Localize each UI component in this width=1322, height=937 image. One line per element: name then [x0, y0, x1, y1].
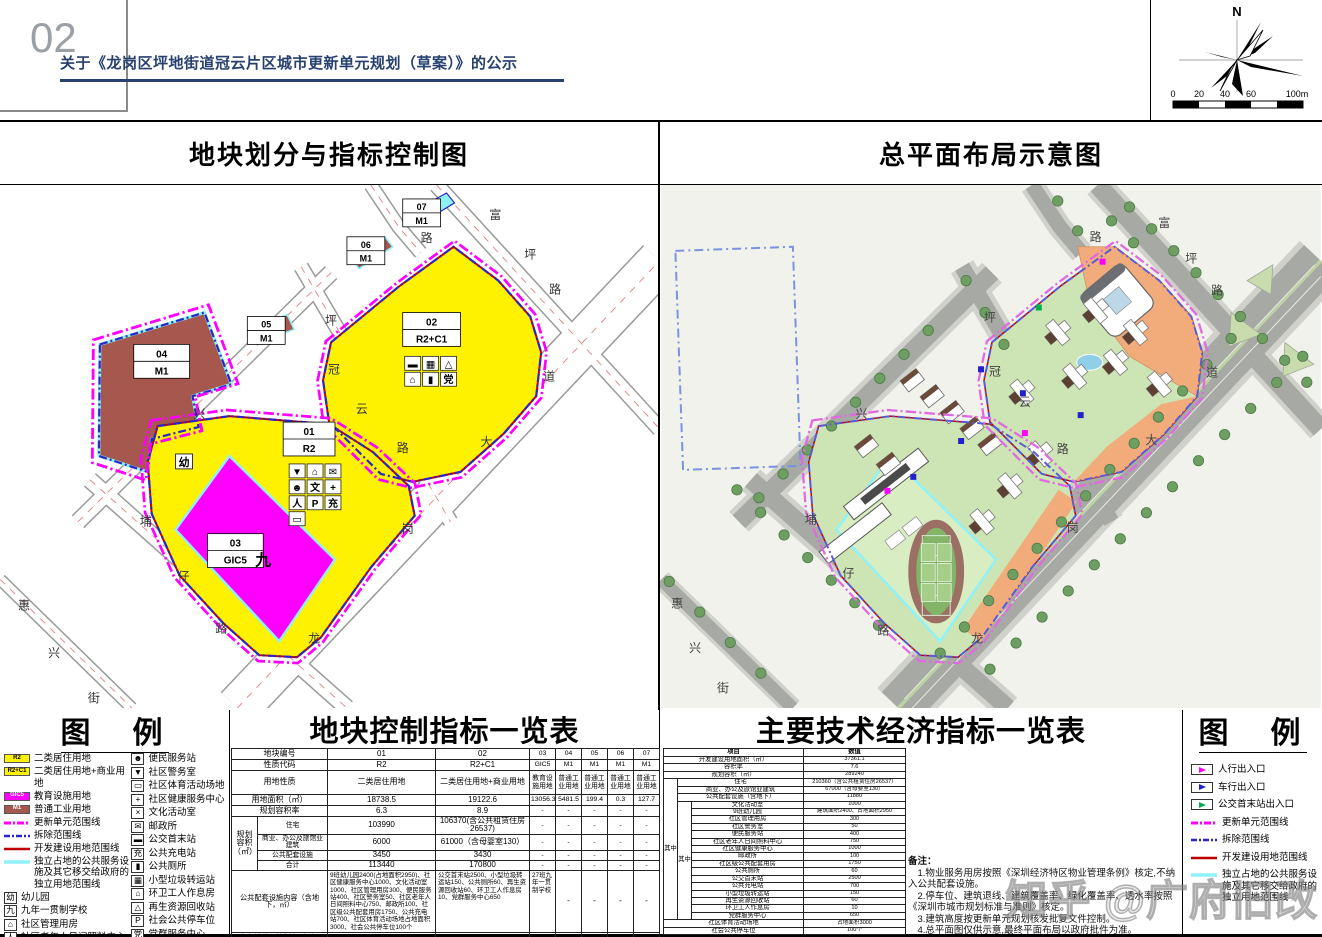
svg-text:M1: M1: [155, 366, 169, 377]
svg-text:02: 02: [426, 317, 438, 328]
legend-item-line: 开发建设用地范围线: [4, 843, 129, 855]
legend-item-facility: ▦小型垃圾转运站: [131, 875, 227, 887]
legend-left-col1: R2二类居住用地 R2+C1二类居住用地+商业用地 GIC5教育设施用地 M1普…: [4, 753, 129, 937]
svg-text:▦: ▦: [426, 359, 435, 370]
legend-right: 图 例 人行出入口车行出入口公交首末站出入口更新单元范围线拆除范围线开发建设用地…: [1183, 710, 1322, 934]
svg-text:▼: ▼: [292, 467, 302, 478]
svg-text:04: 04: [156, 349, 168, 360]
legend-item-facility: ▬公交首末站: [131, 834, 227, 846]
legend-item-entrance: 车行出入口: [1191, 782, 1318, 794]
svg-text:道: 道: [543, 369, 555, 383]
legend-item-facility: ▮公共厕所: [131, 861, 227, 873]
planning-notice-page: 02 关于《龙岗区坪地街道冠云片区城市更新单元规划（草案）》的公示 N 0: [0, 0, 1322, 937]
bus-entrance-icon: [1036, 305, 1042, 311]
legend-item-boxed: 人社区老年人日间照料中心: [4, 932, 129, 937]
legend-item-facility: △再生资源回收站: [131, 902, 227, 914]
svg-text:路: 路: [1211, 283, 1223, 298]
siteplan-map: 富 坪 路 路 坪 冠 云 路 兴 道 大 岗 龙 埔 仔 路 惠: [660, 185, 1322, 708]
社区管理用房-icon: ⌂: [4, 919, 17, 931]
svg-text:坪: 坪: [984, 310, 996, 324]
legend-item-boxed: ⌂社区管理用房: [4, 919, 129, 931]
svg-text:路: 路: [877, 622, 889, 637]
小型垃圾转运站-icon: ▦: [131, 875, 144, 887]
plot-table: 地块编号01020304050607性质代码R2R2+C1GIC5M1M1M1M…: [230, 748, 659, 937]
svg-text:坪: 坪: [325, 313, 337, 327]
svg-text:▬: ▬: [408, 359, 418, 370]
entrance-arrow-icon: [1191, 782, 1213, 793]
svg-text:△: △: [445, 359, 453, 370]
vehicle-entrance-icon: [978, 366, 984, 372]
svg-text:龙: 龙: [971, 631, 983, 645]
svg-text:R2: R2: [303, 444, 316, 455]
svg-text:07: 07: [417, 202, 427, 212]
svg-text:06: 06: [361, 240, 371, 250]
legend-item-facility: ☻便民服务站: [131, 753, 227, 765]
svg-text:60: 60: [1246, 89, 1256, 99]
svg-text:路: 路: [1090, 229, 1102, 244]
svg-text:埔: 埔: [805, 513, 817, 527]
便民服务站-icon: ☻: [131, 753, 144, 765]
svg-text:人: 人: [292, 497, 302, 510]
svg-text:岗: 岗: [402, 522, 414, 536]
map-panels: 地块划分与指标控制图: [0, 122, 1322, 710]
社区老年人日间照料中心-icon: 人: [4, 932, 17, 937]
entrance-arrow-icon: [1191, 764, 1213, 775]
svg-text:⌂: ⌂: [410, 375, 416, 386]
area-swatch-icon: M1: [4, 805, 30, 814]
legend-right-items: 人行出入口车行出入口公交首末站出入口更新单元范围线拆除范围线开发建设用地范围线独…: [1183, 750, 1322, 904]
pedestrian-entrance-icon: [1100, 259, 1106, 265]
公共充电站-icon: 充: [131, 848, 144, 860]
svg-text:仔: 仔: [843, 566, 855, 580]
社区警务室-icon: ▼: [131, 767, 144, 779]
kindergarten-mark: 幼: [179, 455, 190, 469]
compass-rose: [1205, 22, 1303, 96]
svg-text:路: 路: [215, 620, 227, 635]
notes-block: 备注：1.物业服务用房按照《深圳经济特区物业管理条例》核定,不纳入公共配套设施。…: [908, 856, 1180, 937]
svg-text:兴: 兴: [48, 646, 60, 660]
svg-text:埔: 埔: [140, 515, 152, 529]
cyan-solid-line-icon: [1191, 871, 1217, 879]
legend-item-line: 开发建设用地范围线: [1191, 852, 1318, 864]
svg-text:☻: ☻: [292, 483, 302, 494]
svg-text:M1: M1: [260, 333, 272, 343]
svg-text:云: 云: [1019, 395, 1031, 409]
svg-text:文: 文: [310, 481, 321, 494]
legend-item-facility: ▭社区体育活动场地: [131, 780, 227, 792]
legend-item-area: R2+C1二类居住用地+商业用地: [4, 766, 129, 789]
svg-text:兴: 兴: [689, 641, 701, 655]
plot-table-title: 地块控制指标一览表: [230, 710, 659, 748]
siteplan-title: 总平面布局示意图: [660, 122, 1322, 185]
running-track: [912, 524, 960, 620]
svg-text:⌂: ⌂: [312, 467, 318, 478]
legend-item-facility: 充公共充电站: [131, 848, 227, 860]
svg-text:40: 40: [1220, 89, 1230, 99]
legend-item-area: R2二类居住用地: [4, 753, 129, 765]
area-swatch-icon: R2+C1: [4, 767, 30, 776]
legend-item-boxed: 幼幼儿园: [4, 892, 129, 904]
page-title: 关于《龙岗区坪地街道冠云片区城市更新单元规划（草案）》的公示: [60, 52, 564, 82]
svg-text:惠: 惠: [671, 596, 683, 610]
svg-text:大: 大: [480, 435, 492, 449]
legend-item-line: 独立占地的公共服务设施及其它移交给政府的独立用地范围线: [4, 856, 129, 891]
svg-text:惠: 惠: [18, 598, 30, 612]
plot-table-section: 地块控制指标一览表 地块编号01020304050607性质代码R2R2+C1G…: [230, 710, 660, 934]
svg-text:岗: 岗: [1067, 521, 1079, 535]
svg-text:GIC5: GIC5: [224, 556, 248, 567]
plot-label-01: 01R2: [283, 422, 335, 456]
svg-text:路: 路: [1057, 441, 1069, 456]
cyan-solid-line-icon: [4, 858, 30, 866]
svg-text:冠: 冠: [989, 364, 1001, 378]
legend-left: 图 例 R2二类居住用地 R2+C1二类居住用地+商业用地 GIC5教育设施用地…: [0, 710, 230, 934]
svg-text:M1: M1: [415, 216, 427, 226]
tech-table-section: 主要技术经济指标一览表 项目数值开发建设用地面积（㎡）37361.1容积率7.6…: [660, 710, 1183, 934]
area-swatch-icon: R2: [4, 754, 30, 763]
zoning-map: 富 坪 路 路 坪 冠 云 路 兴 道 大 岗 龙 埔 仔 路 惠: [0, 185, 658, 708]
legend-item-facility: ×文化活动室: [131, 807, 227, 819]
legend-item-line: 拆除范围线: [4, 830, 129, 842]
entrance-arrow-icon: [1191, 799, 1213, 810]
svg-text:05: 05: [261, 319, 271, 329]
文化活动室-icon: ×: [131, 807, 144, 819]
svg-text:01: 01: [304, 427, 316, 438]
magenta-dashdot-line-icon: [4, 819, 30, 827]
plot-label-06: 06M1: [347, 237, 385, 265]
svg-text:兴: 兴: [194, 407, 206, 421]
公交首末站-icon: ▬: [131, 834, 144, 846]
legend-left-col2: ☻便民服务站▼社区警务室▭社区体育活动场地+社区健康服务中心×文化活动室✉邮政所…: [131, 753, 227, 937]
zoning-map-panel: 地块划分与指标控制图: [0, 122, 660, 710]
siteplan-panel: 总平面布局示意图: [660, 122, 1322, 710]
legend-left-title: 图 例: [61, 708, 169, 753]
社区体育活动场地-icon: ▭: [131, 780, 144, 792]
legend-item-area: GIC5教育设施用地: [4, 791, 129, 803]
compass-rose-white-ne: [1237, 30, 1263, 60]
scale-bar: [1173, 101, 1303, 108]
legend-item-line: 更新单元范围线: [1191, 817, 1318, 829]
legend-item-facility: 党党群服务中心: [131, 929, 227, 937]
svg-text:✉: ✉: [329, 467, 337, 478]
legend-item-facility: +社区健康服务中心: [131, 794, 227, 806]
svg-text:P: P: [312, 499, 319, 510]
legend-item-facility: ⌂环卫工人作息房: [131, 888, 227, 900]
legend-item-line: 更新单元范围线: [4, 817, 129, 829]
svg-text:M1: M1: [360, 254, 372, 264]
legend-item-entrance: 公交首末站出入口: [1191, 799, 1318, 811]
plot-label-07: 07M1: [403, 199, 441, 227]
legend-right-title: 图 例: [1199, 708, 1307, 753]
svg-text:充: 充: [328, 497, 338, 510]
svg-text:兴: 兴: [856, 407, 868, 421]
svg-text:▮: ▮: [428, 375, 433, 386]
社会公共停车位-icon: P: [131, 915, 144, 927]
svg-text:富: 富: [489, 207, 501, 222]
red-solid-line-icon: [4, 845, 30, 853]
九年一贯制学校-icon: 九: [4, 905, 17, 917]
svg-text:云: 云: [356, 402, 368, 416]
svg-text:100m: 100m: [1286, 89, 1309, 99]
再生资源回收站-icon: △: [131, 902, 144, 914]
svg-text:仔: 仔: [178, 569, 190, 583]
zoning-map-title: 地块划分与指标控制图: [0, 122, 658, 185]
svg-text:党: 党: [444, 373, 454, 386]
环卫工人作息房-icon: ⌂: [131, 888, 144, 900]
svg-text:大: 大: [1145, 433, 1157, 447]
compass-box: N 0 20 40 60 100m: [1150, 0, 1322, 122]
svg-text:20: 20: [1194, 89, 1204, 99]
社区健康服务中心-icon: +: [131, 794, 144, 806]
svg-text:坪: 坪: [1185, 252, 1197, 266]
plot-label-05: 05M1: [247, 316, 285, 344]
公共厕所-icon: ▮: [131, 861, 144, 873]
page-title-text: 关于《龙岗区坪地街道冠云片区城市更新单元规划（草案）》的公示: [60, 52, 564, 82]
bottom-strip: 图 例 R2二类居住用地 R2+C1二类居住用地+商业用地 GIC5教育设施用地…: [0, 710, 1322, 937]
plot-label-04: 04M1: [134, 344, 190, 378]
compass-svg: N 0 20 40 60 100m: [1151, 0, 1322, 122]
邮政所-icon: ✉: [131, 821, 144, 833]
nine-year-school-mark: 九: [254, 552, 271, 570]
svg-text:坪: 坪: [524, 248, 536, 262]
svg-text:0: 0: [1170, 89, 1175, 99]
svg-text:路: 路: [421, 230, 433, 245]
blue-dashdot-line-icon: [1191, 836, 1217, 844]
blue-dashdot-line-icon: [4, 832, 30, 840]
legend-item-facility: ✉邮政所: [131, 821, 227, 833]
svg-text:龙: 龙: [308, 631, 320, 645]
svg-text:03: 03: [230, 539, 242, 550]
svg-text:富: 富: [1158, 215, 1170, 230]
svg-text:路: 路: [549, 282, 561, 297]
legend-item-line: 拆除范围线: [1191, 834, 1318, 846]
党群服务中心-icon: 党: [131, 929, 144, 937]
legend-item-boxed: 九九年一贯制学校: [4, 905, 129, 917]
svg-text:街: 街: [717, 681, 729, 695]
top-bar: 02 关于《龙岗区坪地街道冠云片区城市更新单元规划（草案）》的公示 N 0: [0, 0, 1322, 122]
svg-text:道: 道: [1206, 365, 1218, 379]
legend-item-area: M1普通工业用地: [4, 804, 129, 816]
legend-item-facility: P社会公共停车位: [131, 915, 227, 927]
svg-text:冠: 冠: [328, 362, 340, 376]
svg-text:▭: ▭: [292, 515, 301, 526]
legend-item-entrance: 人行出入口: [1191, 764, 1318, 776]
svg-text:R2+C1: R2+C1: [416, 334, 448, 345]
red-solid-line-icon: [1191, 854, 1217, 862]
svg-text:路: 路: [397, 440, 409, 455]
area-swatch-icon: GIC5: [4, 792, 30, 801]
svg-text:街: 街: [88, 691, 100, 705]
plot-label-02: 02R2+C1: [403, 313, 461, 347]
north-label: N: [1232, 4, 1241, 19]
tech-table-title: 主要技术经济指标一览表: [660, 710, 1182, 748]
legend-item-line: 独立占地的公共服务设施及其它移交给政府的独立用地范围线: [1191, 869, 1318, 904]
legend-item-facility: ▼社区警务室: [131, 767, 227, 779]
svg-text:+: +: [330, 483, 336, 494]
magenta-dashdot-line-icon: [1191, 819, 1217, 827]
幼儿园-icon: 幼: [4, 892, 17, 904]
